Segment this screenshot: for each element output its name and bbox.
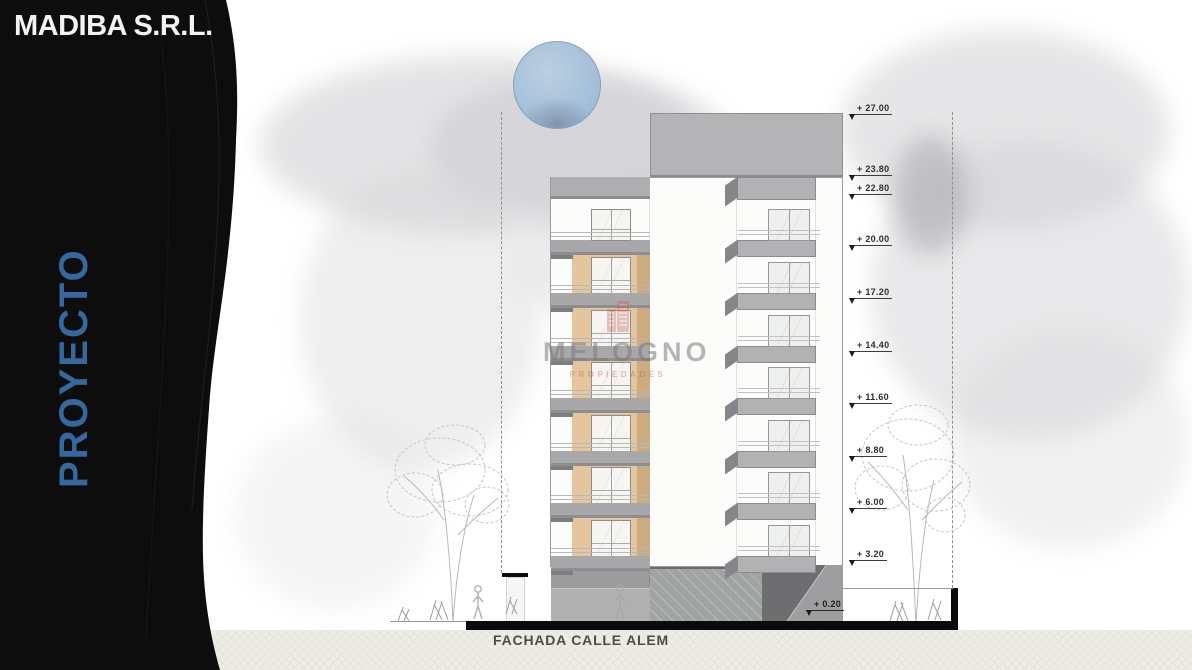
floor-slab [551, 503, 650, 518]
marker-arrow-icon [849, 114, 855, 120]
balcony-rail-line [551, 548, 650, 549]
window-mullion [592, 438, 630, 439]
balcony-glass-panel [768, 472, 810, 504]
project-label: PROYECTO [52, 238, 97, 488]
window-mullion [592, 490, 630, 491]
balcony-rail-line [738, 441, 820, 442]
window-mullion [592, 543, 630, 544]
balcony-slab [737, 503, 816, 520]
watermark-subtext: PROPIEDADES [543, 370, 693, 379]
marker-arrow-icon [849, 403, 855, 409]
fence-pillar [506, 577, 525, 623]
property-line-right [952, 112, 953, 588]
balcony-glass-panel [768, 209, 810, 241]
cloud-shape [235, 420, 435, 610]
balcony-slab [737, 556, 816, 573]
balcony-rail-line [738, 546, 820, 547]
wall-shade-strip [637, 518, 650, 556]
window-mullion [592, 385, 630, 386]
ground-level-marker: + 0.20 [806, 599, 844, 611]
balcony-slab [737, 293, 816, 310]
elevation-marker: + 3.20 [849, 549, 887, 561]
balcony-slab [737, 451, 816, 468]
balcony-rail-line [551, 236, 650, 237]
balcony-rail-line [551, 390, 650, 391]
window-mullion [592, 280, 630, 281]
marker-arrow-icon [849, 508, 855, 514]
glass-mullion [789, 526, 790, 556]
wall-shade-strip [637, 255, 650, 293]
marker-arrow-icon [849, 194, 855, 200]
balcony-rail-line [551, 289, 650, 290]
balcony-rail-line [738, 550, 820, 551]
window-mullion [611, 416, 612, 451]
balcony-glass-panel [768, 262, 810, 294]
patio-level-line [843, 588, 953, 589]
cloud-shape [950, 330, 1190, 550]
window-mullion [592, 229, 630, 230]
balcony-glass-panel [768, 367, 810, 399]
slab-bevel [551, 466, 573, 470]
slide-canvas: + 27.00+ 23.80+ 22.80+ 20.00+ 17.20+ 14.… [0, 0, 1192, 670]
ground-line [466, 621, 958, 630]
elevation-marker: + 23.80 [849, 164, 892, 176]
balcony-rail-line [551, 447, 650, 448]
marker-arrow-icon [849, 175, 855, 181]
glass-mullion [789, 316, 790, 346]
glass-mullion [789, 263, 790, 293]
balcony-rail-line [738, 493, 820, 494]
balcony-slab [737, 398, 816, 415]
balcony-slab [737, 240, 816, 257]
balcony-rail-line [551, 552, 650, 553]
patio-wall [951, 588, 958, 630]
balcony-glass-panel [768, 420, 810, 452]
sun-circle [513, 41, 601, 129]
elevation-marker: + 6.00 [849, 497, 887, 509]
glass-mullion [789, 368, 790, 398]
slab-bevel [551, 571, 573, 575]
watermark: MELOGNO PROPIEDADES [543, 300, 693, 379]
balcony-rail-line [738, 340, 820, 341]
floor-slab [551, 451, 650, 466]
balcony-slab [737, 177, 816, 200]
sidewalk-line [390, 621, 466, 622]
balcony-rail-line [738, 287, 820, 288]
marker-arrow-icon [849, 456, 855, 462]
balcony-rail-line [551, 495, 650, 496]
ground-wall-lower [551, 588, 650, 621]
marker-arrow-icon [849, 351, 855, 357]
floor-slab [551, 398, 650, 413]
balcony-rail-line [738, 336, 820, 337]
balcony-rail-line [738, 497, 820, 498]
balcony-slab [737, 346, 816, 363]
elevation-marker: + 20.00 [849, 234, 892, 246]
elevation-marker: + 14.40 [849, 340, 892, 352]
driveway-ramp [762, 565, 843, 621]
balcony-rail-line [551, 443, 650, 444]
slab-bevel [551, 255, 573, 259]
balcony-rail-line [738, 392, 820, 393]
elevation-marker: + 27.00 [849, 103, 892, 115]
marker-arrow-icon [806, 610, 812, 616]
company-logo-text: MADIBA S.R.L. [14, 10, 213, 43]
balcony-rail-line [551, 232, 650, 233]
balcony-rail-line [551, 394, 650, 395]
balcony-glass-panel [768, 315, 810, 347]
elevation-marker: + 22.80 [849, 183, 892, 195]
watermark-name: MELOGNO [543, 337, 693, 368]
slab-bevel [551, 518, 573, 522]
watermark-building-icon [605, 300, 631, 332]
glass-mullion [789, 421, 790, 451]
window-mullion [611, 521, 612, 556]
balcony-glass-panel [768, 525, 810, 557]
balcony-rail-line [738, 230, 820, 231]
roof-bulkhead [650, 113, 843, 177]
balcony-rail-line [551, 499, 650, 500]
drawing-title: FACHADA CALLE ALEM [431, 632, 731, 648]
parapet-band [551, 177, 650, 199]
balcony-rail-line [738, 388, 820, 389]
balcony-rail-line [738, 283, 820, 284]
wall-shade-strip [637, 466, 650, 503]
floor-slab [551, 240, 650, 255]
glass-mullion [789, 473, 790, 503]
property-line-left [501, 112, 502, 573]
garage-door [650, 567, 762, 621]
marker-arrow-icon [849, 298, 855, 304]
marker-arrow-icon [849, 560, 855, 566]
balcony-rail-line [738, 234, 820, 235]
elevation-marker: + 17.20 [849, 287, 892, 299]
balcony-rail-line [551, 285, 650, 286]
floor-slab [551, 556, 650, 571]
elevation-marker: + 8.80 [849, 445, 887, 457]
fence-cap [502, 573, 528, 577]
glass-mullion [789, 210, 790, 240]
marker-arrow-icon [849, 245, 855, 251]
balcony-rail-line [738, 445, 820, 446]
slab-bevel [551, 413, 573, 417]
cloud-shape [893, 135, 968, 255]
window-mullion [611, 468, 612, 503]
wall-shade-strip [637, 413, 650, 451]
window-mullion [611, 258, 612, 293]
elevation-marker: + 11.60 [849, 392, 892, 404]
sun-cloud-shade [519, 97, 595, 129]
